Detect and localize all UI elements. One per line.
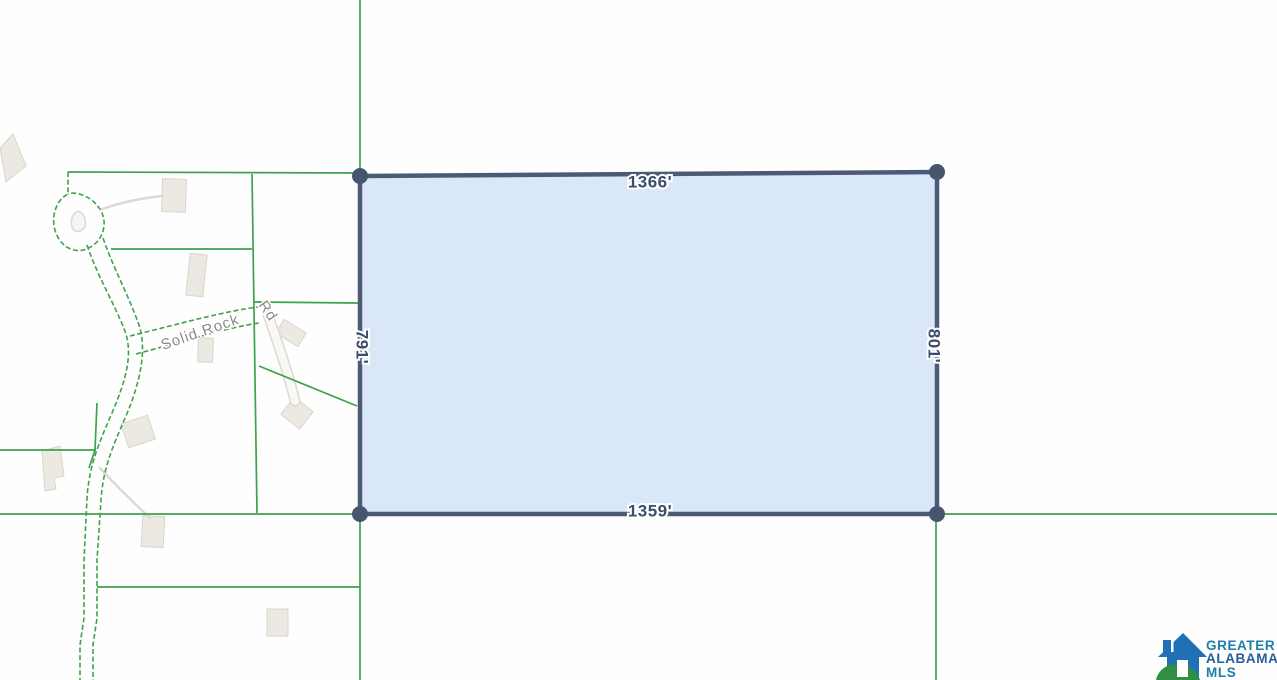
culdesac-island bbox=[71, 211, 85, 231]
dimension-label-right: 801' bbox=[925, 329, 944, 363]
building-footprint bbox=[42, 446, 64, 491]
dimension-label-left: 791' bbox=[353, 330, 372, 364]
parcel-corner-dot bbox=[929, 506, 945, 522]
house-icon bbox=[1156, 633, 1207, 680]
building-footprint bbox=[161, 179, 186, 213]
lot-line bbox=[68, 172, 360, 173]
building-footprint bbox=[141, 515, 165, 547]
driveway bbox=[102, 196, 163, 209]
lot-line bbox=[252, 174, 257, 513]
road-name-label: Solid Rock Rd bbox=[159, 298, 281, 354]
subject-parcel-boundary[interactable] bbox=[360, 172, 937, 514]
door-shape bbox=[1177, 660, 1188, 677]
building-footprint bbox=[0, 134, 26, 182]
logo-text-alabama: ALABAMA bbox=[1206, 651, 1277, 666]
logo-text-mls: MLS bbox=[1206, 665, 1236, 680]
building-footprint bbox=[121, 415, 155, 447]
parcel-corner-dot bbox=[929, 164, 945, 180]
road-edge bbox=[93, 238, 142, 680]
driveway bbox=[100, 468, 150, 518]
lot-line bbox=[89, 403, 97, 468]
mls-logo: GREATER ALABAMA MLS bbox=[1156, 633, 1277, 680]
parcel-corner-dot bbox=[352, 168, 368, 184]
dimension-label-bottom: 1359' bbox=[628, 502, 672, 521]
dimension-label-top: 1366' bbox=[628, 173, 672, 192]
road-edge bbox=[80, 245, 128, 680]
building-footprint bbox=[186, 253, 207, 297]
map-canvas[interactable]: 1366' 1359' 791' 801' Solid Rock Rd GREA… bbox=[0, 0, 1277, 680]
subject-parcel: 1366' 1359' 791' 801' bbox=[352, 164, 945, 522]
lot-line bbox=[259, 366, 357, 406]
buildings bbox=[0, 134, 313, 636]
building-footprint bbox=[267, 609, 288, 636]
parcel-corner-dot bbox=[352, 506, 368, 522]
